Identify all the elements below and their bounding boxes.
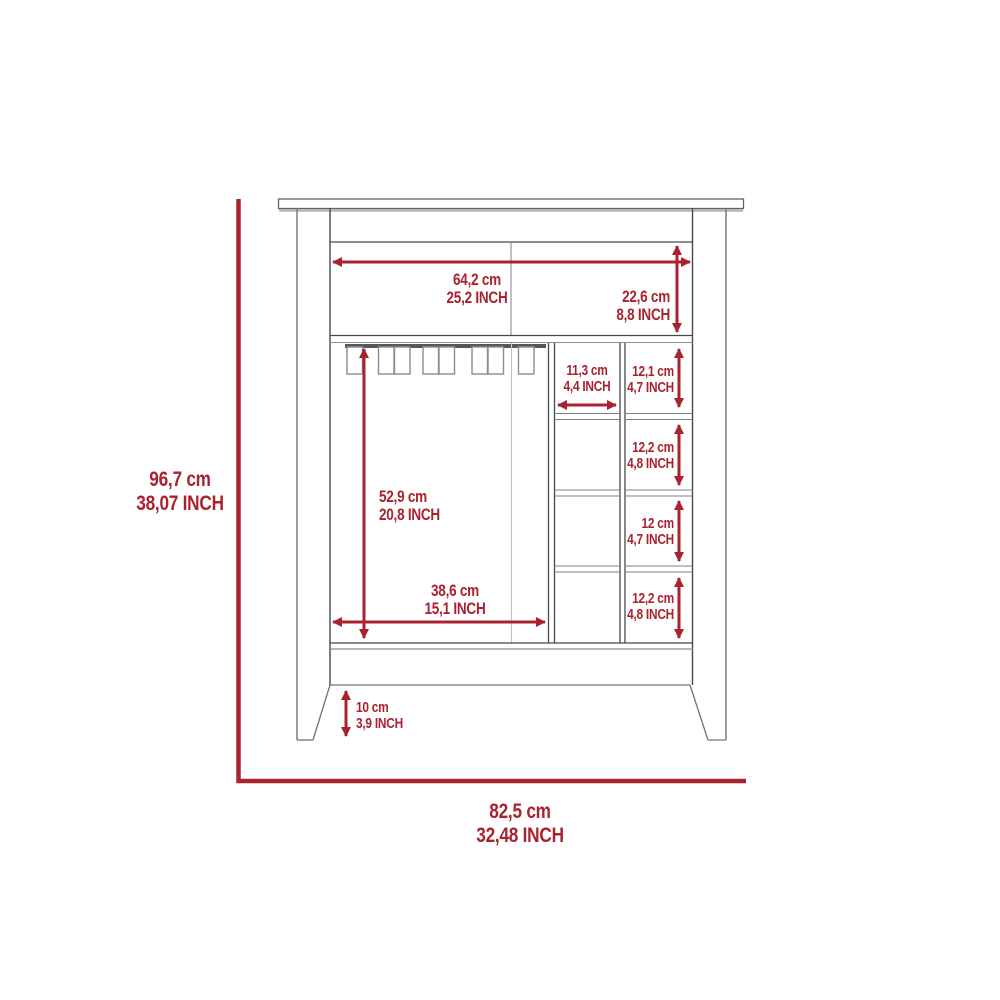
- dim-label-leg-height: 10 cm 3,9 INCH: [356, 700, 403, 732]
- dim-label-cubby-column-width: 11,3 cm 4,4 INCH: [557, 363, 618, 395]
- countertop: [279, 199, 744, 211]
- dim-label-cubby-3-height: 12 cm 4,7 INCH: [613, 516, 674, 548]
- dim-label-cubby-4-height: 12,2 cm 4,8 INCH: [613, 591, 674, 623]
- dim-label-top-section-width: 64,2 cm 25,2 INCH: [428, 271, 526, 308]
- dimension-diagram: 96,7 cm 38,07 INCH 82,5 cm 32,48 INCH 64…: [0, 0, 1000, 1000]
- dim-label-cubby-1-height: 12,1 cm 4,7 INCH: [613, 364, 674, 396]
- dim-label-cubby-2-height: 12,2 cm 4,8 INCH: [613, 440, 674, 472]
- stemware-rack: [345, 346, 546, 374]
- dim-label-overall-width: 82,5 cm 32,48 INCH: [438, 800, 602, 847]
- dim-label-top-section-height: 22,6 cm 8,8 INCH: [588, 288, 670, 325]
- dim-label-overall-height: 96,7 cm 38,07 INCH: [123, 468, 238, 515]
- dim-label-open-compartment-height: 52,9 cm 20,8 INCH: [379, 488, 440, 525]
- dim-label-open-compartment-width: 38,6 cm 15,1 INCH: [406, 582, 504, 619]
